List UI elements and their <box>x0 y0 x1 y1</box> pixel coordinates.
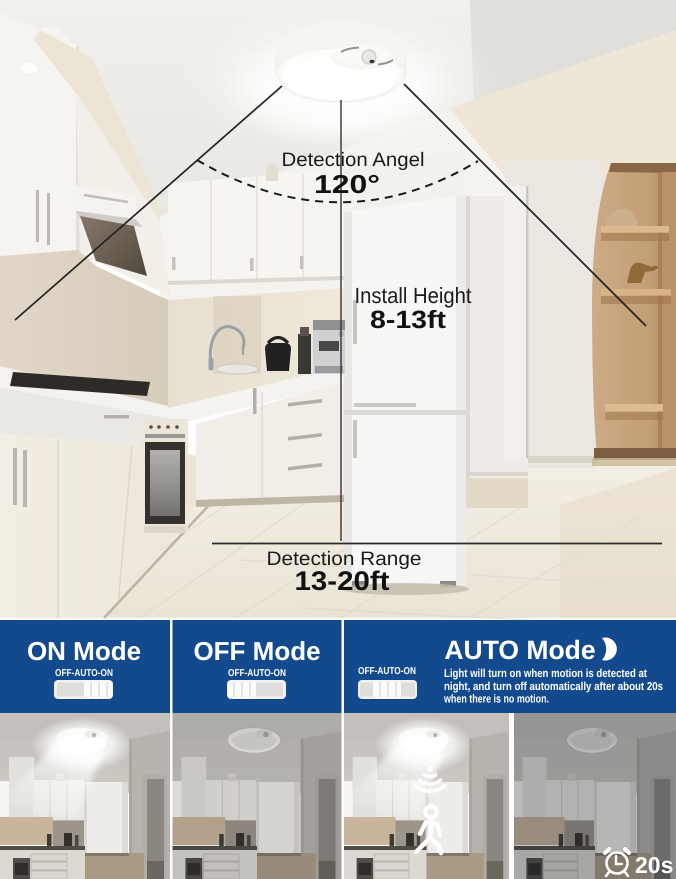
svg-text:when there is no motion.: when there is no motion. <box>443 694 549 706</box>
svg-text:AUTO Mode: AUTO Mode <box>444 635 595 665</box>
svg-text:ON Mode: ON Mode <box>27 636 141 666</box>
svg-text:OFF-AUTO-ON: OFF-AUTO-ON <box>358 666 416 677</box>
svg-text:Install Height: Install Height <box>355 283 472 308</box>
svg-text:night, and turn off automatica: night, and turn off automatically after … <box>444 681 663 693</box>
svg-text:OFF-AUTO-ON: OFF-AUTO-ON <box>228 668 286 679</box>
svg-text:13-20ft: 13-20ft <box>295 566 390 596</box>
svg-text:20s: 20s <box>635 852 673 878</box>
svg-text:8-13ft: 8-13ft <box>370 306 447 334</box>
svg-text:OFF-AUTO-ON: OFF-AUTO-ON <box>55 668 113 679</box>
svg-text:Detection Angel: Detection Angel <box>282 149 425 171</box>
svg-text:Light will turn on when motion: Light will turn on when motion is detect… <box>444 668 647 680</box>
svg-text:120°: 120° <box>314 169 380 199</box>
svg-text:OFF Mode: OFF Mode <box>193 636 320 666</box>
